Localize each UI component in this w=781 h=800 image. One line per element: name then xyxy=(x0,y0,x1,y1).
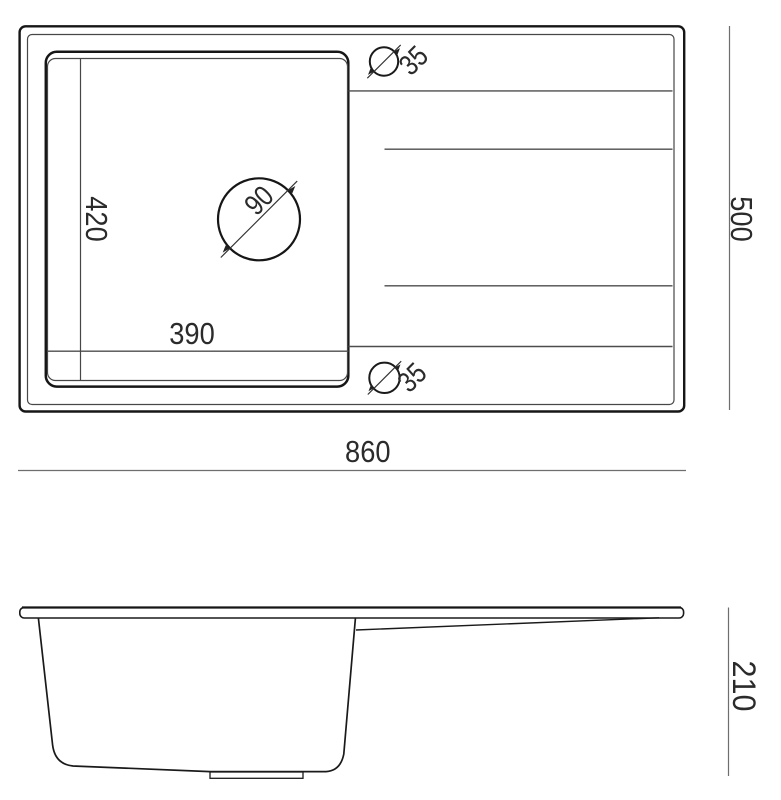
svg-text:860: 860 xyxy=(345,434,391,469)
svg-text:500: 500 xyxy=(724,196,759,242)
svg-text:210: 210 xyxy=(726,661,762,712)
svg-text:420: 420 xyxy=(79,196,114,242)
svg-text:390: 390 xyxy=(169,316,215,351)
